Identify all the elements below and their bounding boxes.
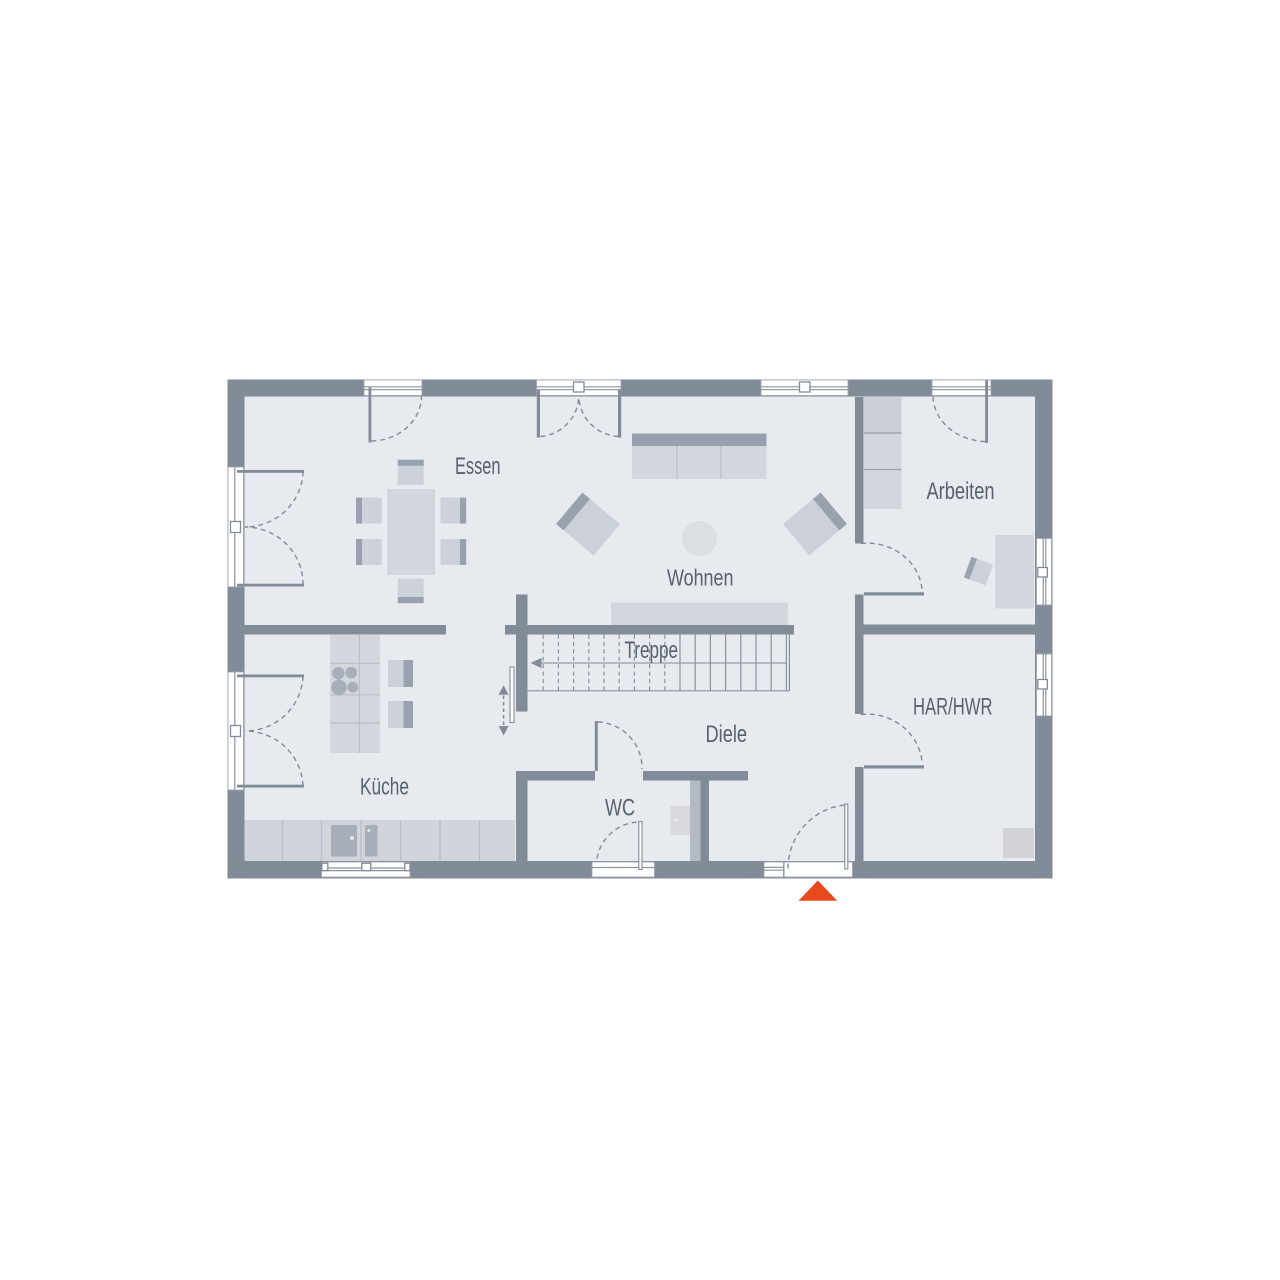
svg-text:HAR/HWR: HAR/HWR	[913, 694, 993, 721]
svg-text:Diele: Diele	[706, 721, 748, 748]
svg-text:Essen: Essen	[455, 453, 501, 480]
svg-text:Treppe: Treppe	[625, 637, 679, 664]
svg-text:Küche: Küche	[360, 774, 409, 801]
svg-text:Arbeiten: Arbeiten	[927, 478, 995, 505]
svg-text:Wohnen: Wohnen	[667, 565, 734, 591]
svg-text:WC: WC	[605, 795, 635, 822]
